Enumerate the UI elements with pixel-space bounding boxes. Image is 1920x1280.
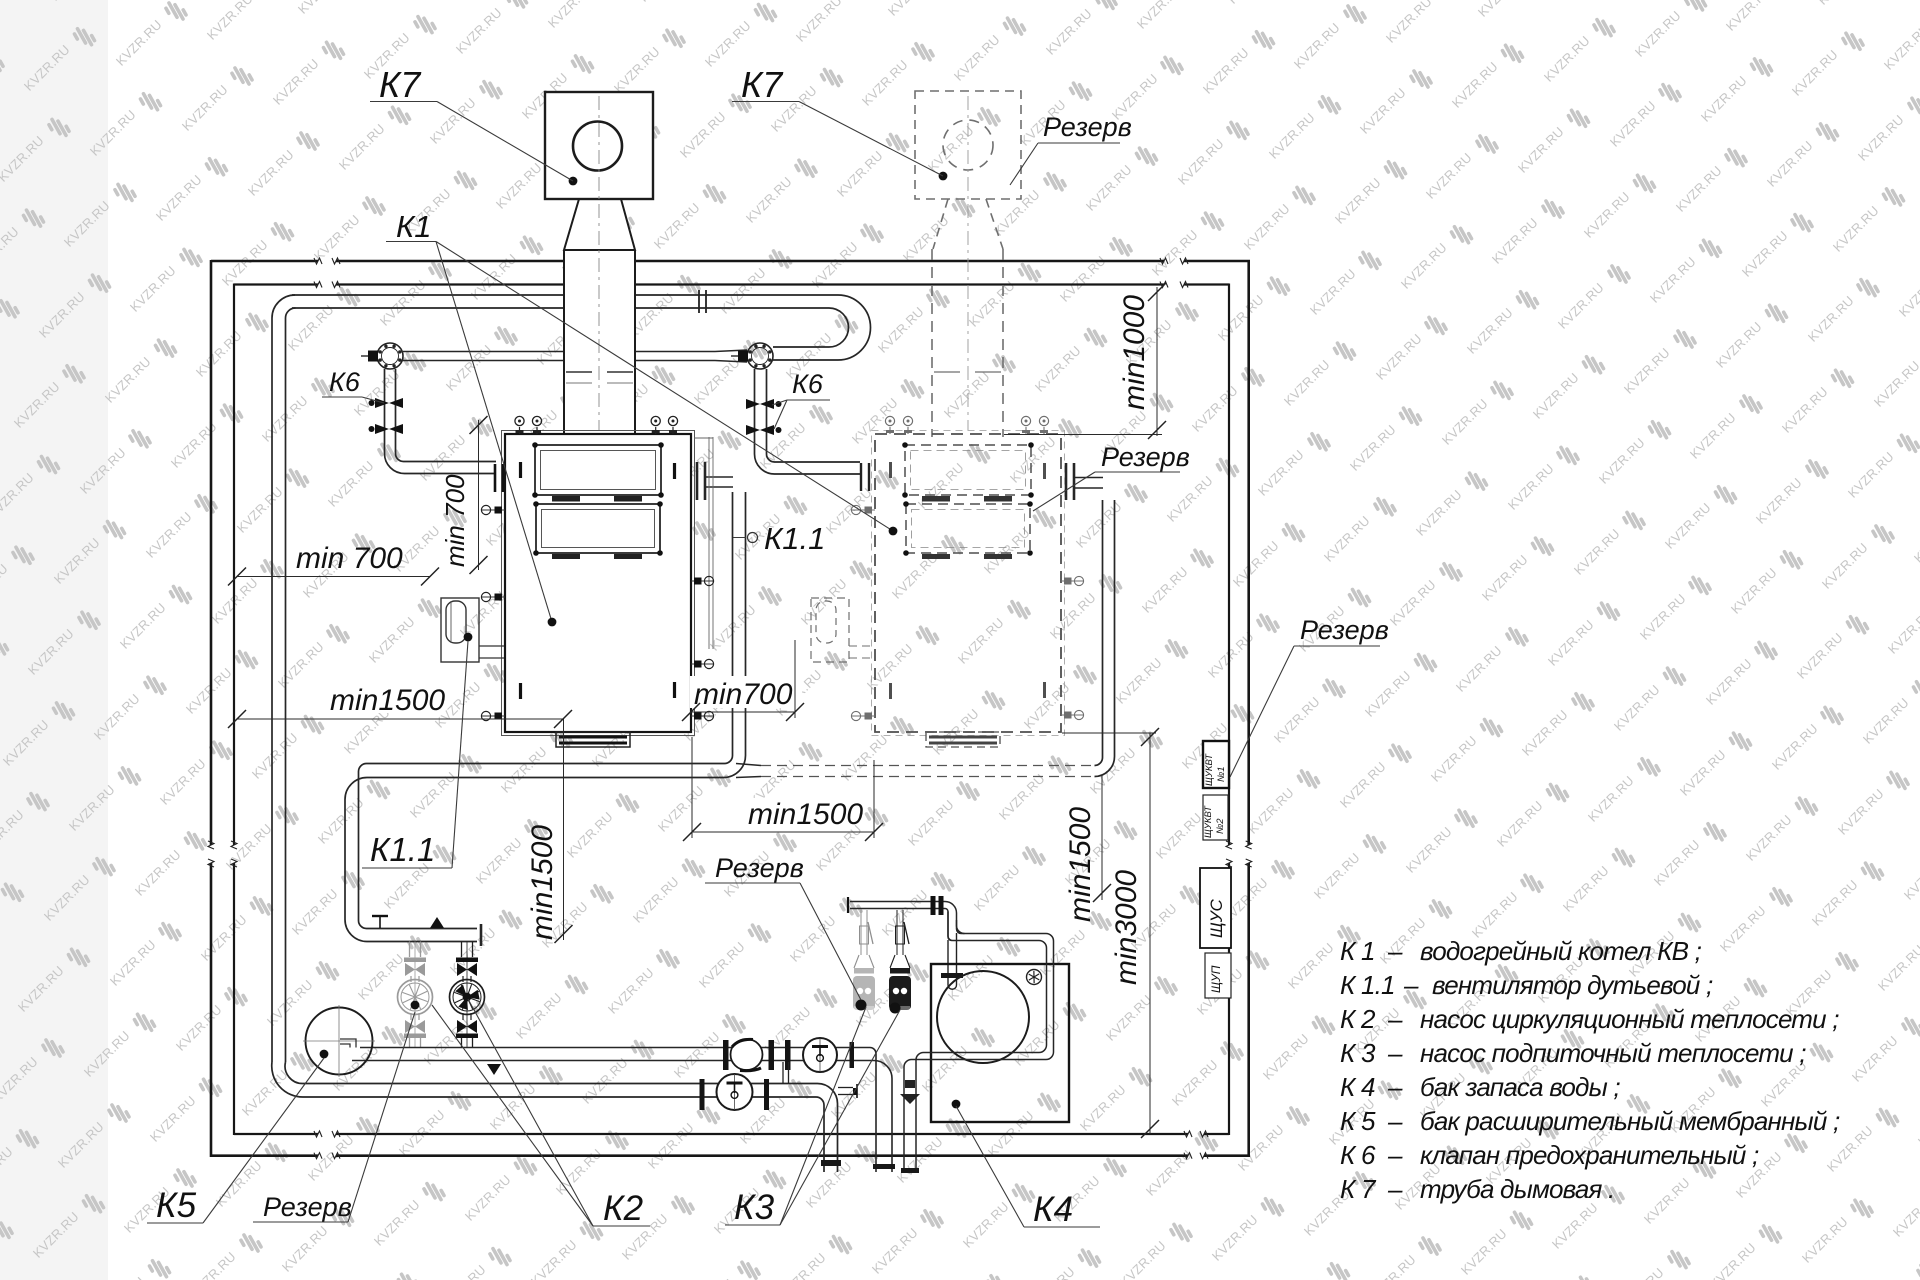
svg-text:бак запаса воды ;: бак запаса воды ; (1420, 1072, 1620, 1102)
svg-text:№2: №2 (1215, 818, 1226, 834)
svg-text:К 1.1: К 1.1 (1340, 970, 1395, 1000)
svg-text:Резерв: Резерв (1300, 615, 1389, 645)
svg-text:–: – (1387, 1038, 1403, 1068)
svg-text:min1500: min1500 (748, 798, 863, 831)
svg-text:К1.1: К1.1 (764, 521, 825, 556)
svg-text:К1.1: К1.1 (370, 831, 435, 868)
svg-text:ЩУКВТ: ЩУКВТ (1204, 753, 1215, 786)
svg-text:К6: К6 (329, 367, 361, 397)
svg-text:вентилятор дутьевой ;: вентилятор дутьевой ; (1432, 970, 1713, 1000)
svg-text:К5: К5 (156, 1186, 197, 1225)
svg-text:min 700: min 700 (296, 542, 403, 575)
svg-text:водогрейный котел КВ ;: водогрейный котел КВ ; (1420, 936, 1702, 966)
svg-text:ЩУС: ЩУС (1207, 898, 1226, 938)
svg-text:–: – (1387, 1072, 1403, 1102)
svg-text:К2: К2 (603, 1189, 643, 1228)
svg-text:К7: К7 (379, 64, 422, 105)
svg-text:min 700: min 700 (440, 474, 470, 567)
svg-text:min700: min700 (694, 678, 793, 711)
svg-text:К 5: К 5 (1340, 1106, 1376, 1136)
svg-text:Резерв: Резерв (1043, 112, 1132, 142)
svg-text:№1: №1 (1216, 766, 1227, 782)
svg-text:К 4: К 4 (1340, 1072, 1375, 1102)
svg-text:ЩУКВТ: ЩУКВТ (1203, 805, 1214, 838)
svg-text:min1500: min1500 (526, 825, 559, 940)
svg-text:min3000: min3000 (1110, 870, 1143, 985)
svg-text:К6: К6 (792, 369, 824, 399)
svg-text:–: – (1387, 1004, 1403, 1034)
svg-text:К 2: К 2 (1340, 1004, 1376, 1034)
svg-text:–: – (1387, 1174, 1403, 1204)
svg-text:Резерв: Резерв (715, 853, 804, 883)
svg-text:К 6: К 6 (1340, 1140, 1376, 1170)
svg-text:min1500: min1500 (1064, 807, 1097, 922)
svg-text:труба дымовая .: труба дымовая . (1420, 1174, 1614, 1204)
svg-text:К7: К7 (741, 64, 784, 105)
svg-text:min1500: min1500 (330, 684, 445, 717)
svg-text:–: – (1387, 1106, 1403, 1136)
svg-text:Резерв: Резерв (263, 1192, 352, 1222)
svg-text:–: – (1403, 970, 1419, 1000)
svg-text:насос циркуляционный теплосети: насос циркуляционный теплосети ; (1420, 1004, 1839, 1034)
svg-text:бак расширительный мембранный: бак расширительный мембранный ; (1420, 1106, 1840, 1136)
svg-text:–: – (1387, 1140, 1403, 1170)
svg-text:min1000: min1000 (1118, 295, 1151, 410)
svg-text:ЩУП: ЩУП (1209, 965, 1223, 993)
svg-text:клапан предохранительный ;: клапан предохранительный ; (1420, 1140, 1759, 1170)
svg-text:К1: К1 (396, 209, 432, 244)
svg-text:–: – (1387, 936, 1403, 966)
svg-text:К3: К3 (734, 1188, 775, 1227)
svg-text:К4: К4 (1033, 1190, 1073, 1229)
svg-text:К 3: К 3 (1340, 1038, 1376, 1068)
svg-text:К 1: К 1 (1340, 936, 1375, 966)
svg-text:насос подпиточный теплосети ;: насос подпиточный теплосети ; (1420, 1038, 1806, 1068)
svg-text:К 7: К 7 (1340, 1174, 1377, 1204)
svg-text:Резерв: Резерв (1101, 442, 1190, 472)
